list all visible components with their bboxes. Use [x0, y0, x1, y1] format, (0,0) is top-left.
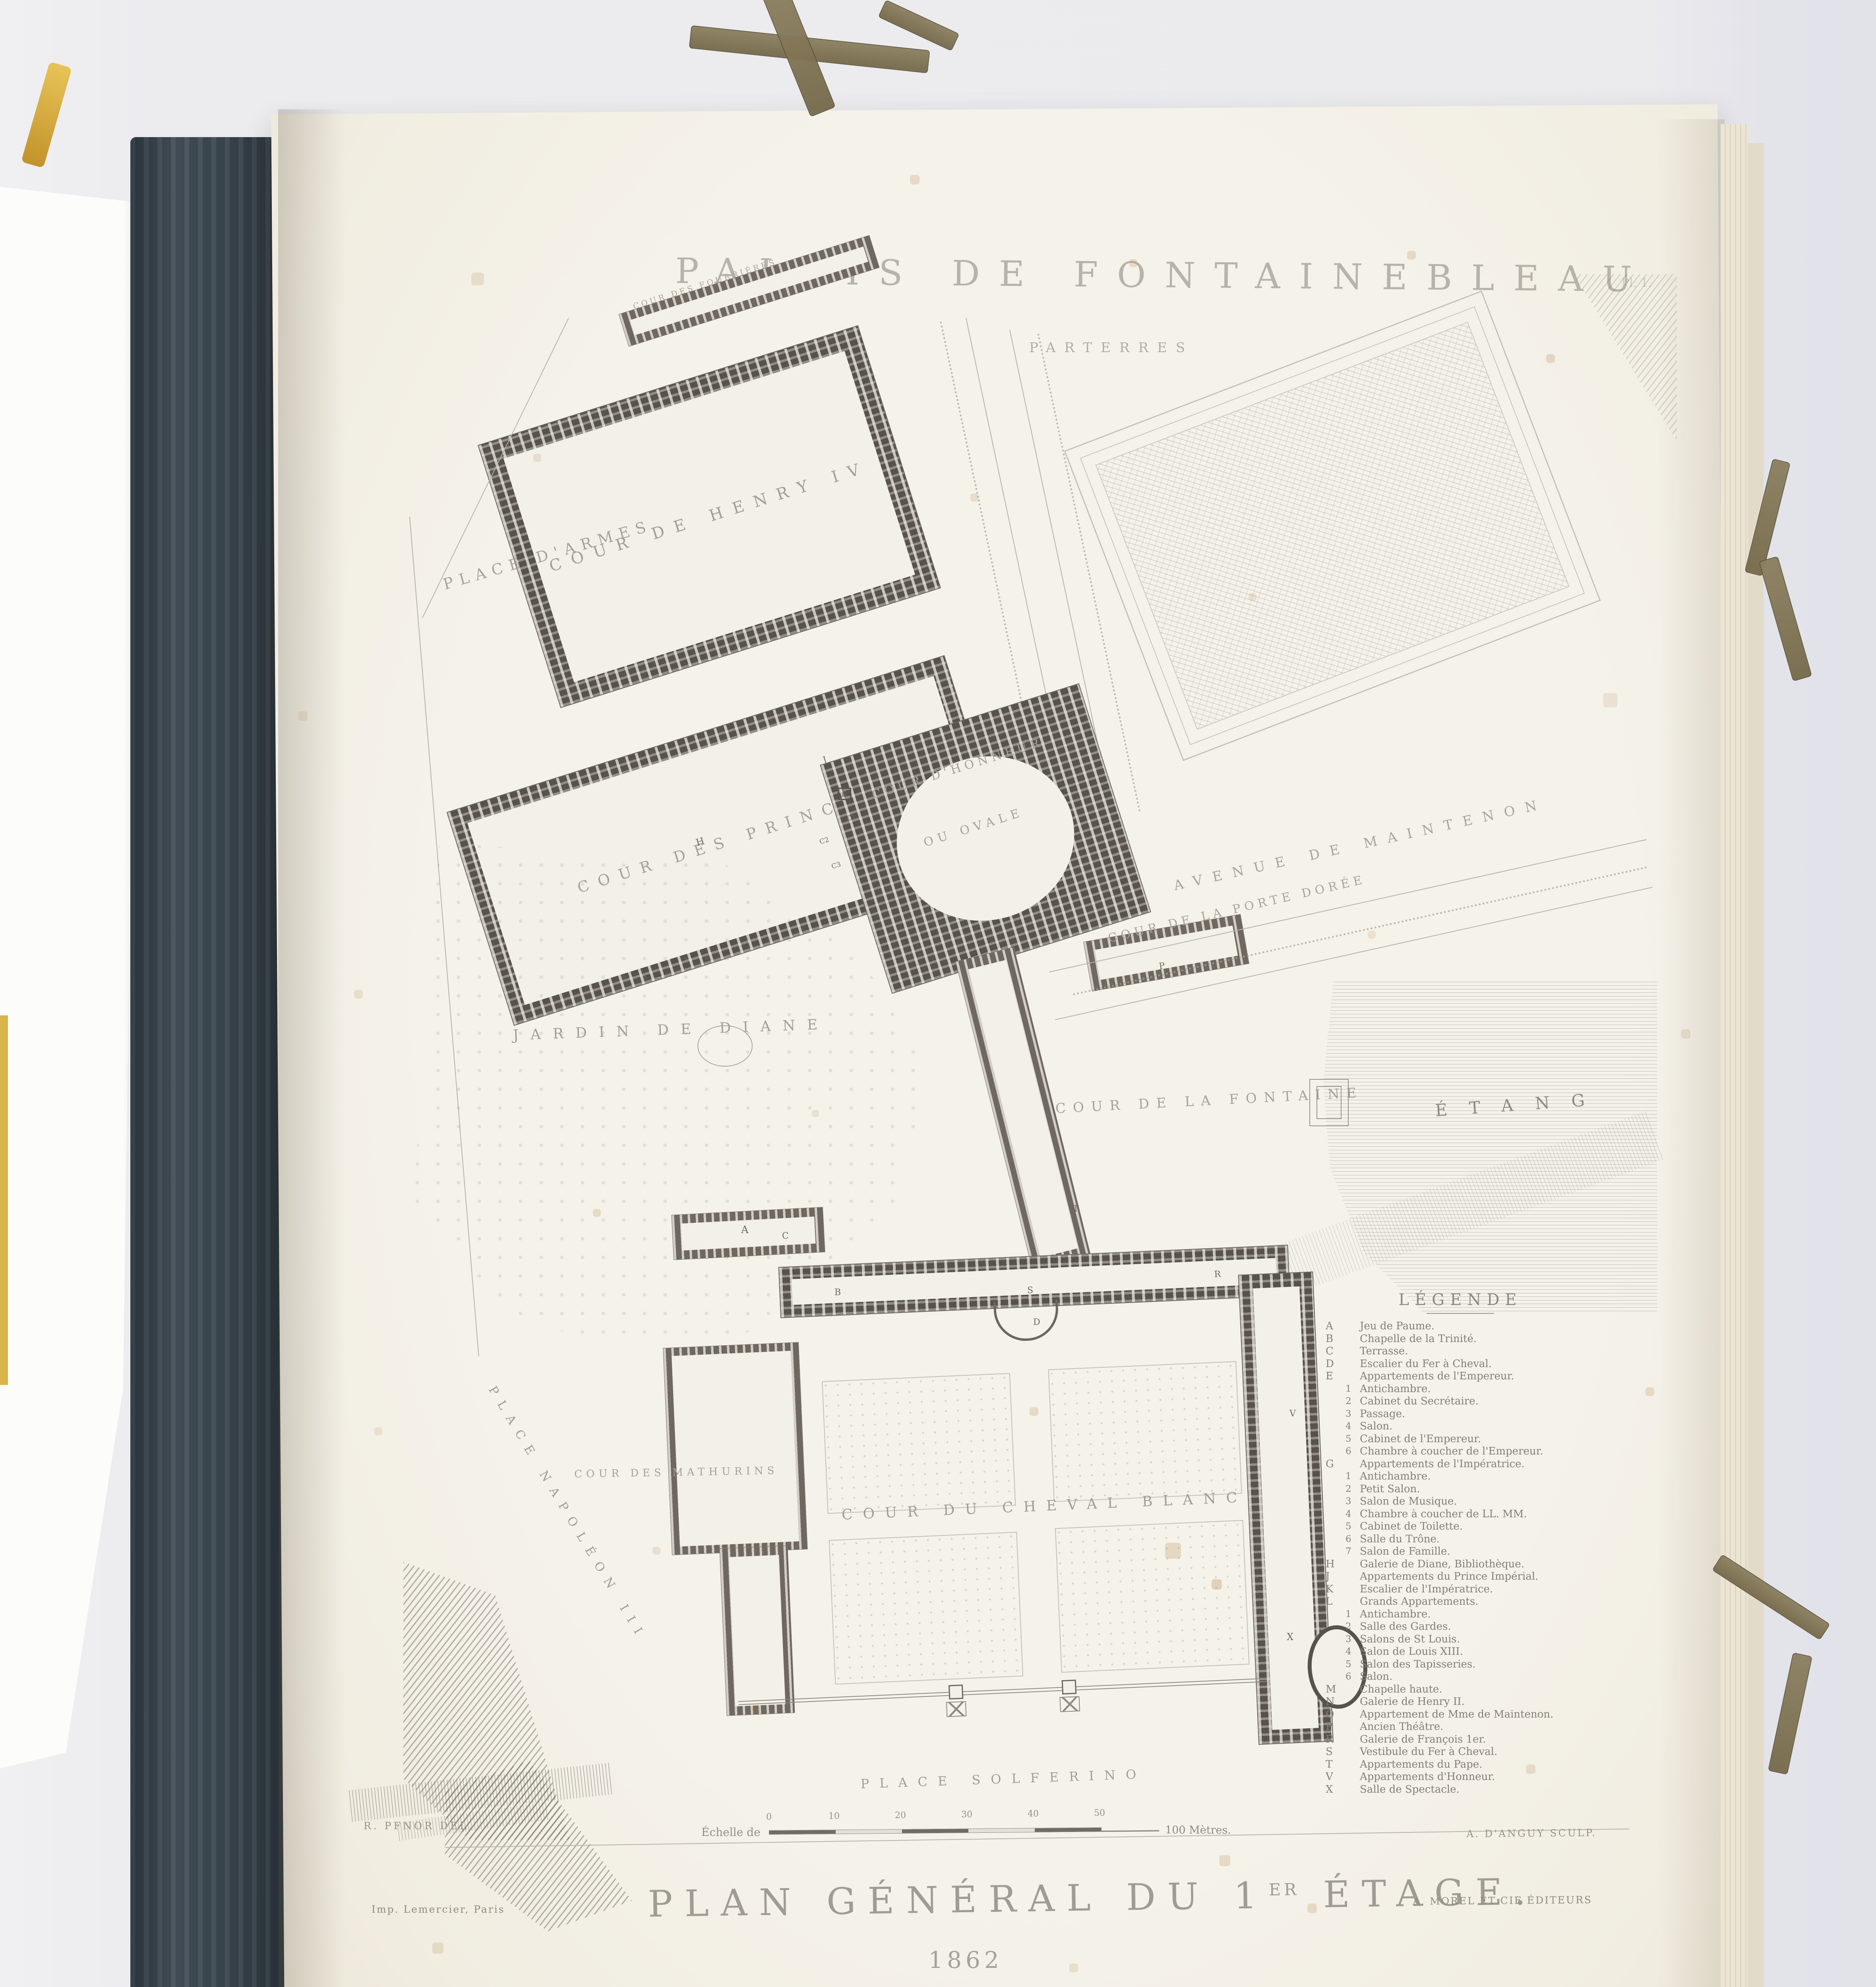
- plan-mark-k: K: [838, 788, 851, 800]
- gate-grille: [946, 1701, 967, 1717]
- foxing-spots: [0, 0, 2, 2]
- legend-row: GAppartements de l'Impératrice.: [1323, 1458, 1597, 1471]
- plan-mark-d: D: [1033, 1317, 1040, 1327]
- legend-row: OAppartement de Mme de Maintenon.: [1323, 1708, 1597, 1721]
- map-label-cour-de-henry-iv: COUR DE HENRY IV: [547, 458, 872, 576]
- plan-mark-a: A: [741, 1224, 749, 1236]
- gate-pier: [1062, 1679, 1077, 1695]
- legend-row: EAppartements de l'Empereur.: [1323, 1370, 1597, 1383]
- plan-mark-c: C: [782, 1231, 789, 1241]
- legend-row: PAncien Théâtre.: [1323, 1721, 1597, 1733]
- legend-row: HGalerie de Diane, Bibliothèque.: [1323, 1558, 1597, 1571]
- court-parterre-square: [1055, 1520, 1249, 1673]
- plate-title-superscript: ER: [1269, 1880, 1300, 1899]
- plate-title-part2: ÉTAGE.: [1299, 1871, 1538, 1916]
- page-gutter-shadow: [278, 109, 346, 1987]
- legend-row: 4Chambre à coucher de LL. MM.: [1323, 1508, 1597, 1521]
- legend-row: 2Petit Salon.: [1323, 1483, 1597, 1496]
- fabric-tie: [878, 0, 959, 51]
- legend-row: 6Salle du Trône.: [1323, 1533, 1597, 1546]
- scale-tick: 50: [1094, 1808, 1105, 1818]
- legend-row: SVestibule du Fer à Cheval.: [1323, 1746, 1597, 1758]
- scale-tick: 40: [1028, 1809, 1039, 1819]
- imprint-publisher: A. MOREL ET CIE ÉDITEURS: [1413, 1894, 1592, 1907]
- page-stack-right-edge: [1748, 143, 1764, 1987]
- fabric-tie: [1768, 1652, 1812, 1775]
- legend-row: 4Salon de Louis XIII.: [1323, 1646, 1597, 1658]
- legend-row: AJeu de Paume.: [1323, 1320, 1597, 1333]
- court-parterre-square: [1048, 1361, 1242, 1502]
- legend-row: DEscalier du Fer à Cheval.: [1323, 1358, 1597, 1371]
- plan-mark-r: R: [1214, 1269, 1221, 1280]
- plate-year: 1862: [906, 1946, 1025, 1973]
- legend-row: JAppartements du Prince Impérial.: [1323, 1571, 1597, 1583]
- legend-row: 6Salon.: [1323, 1671, 1597, 1683]
- left-page-stack: [0, 187, 143, 1768]
- legend-row: 5Cabinet de l'Empereur.: [1323, 1433, 1597, 1446]
- legend-row: NGalerie de Henry II.: [1323, 1696, 1597, 1708]
- scale-tick: 0: [766, 1812, 772, 1822]
- plate-title-part1: PLAN GÉNÉRAL DU 1: [648, 1874, 1269, 1925]
- legend-row: 4Salon.: [1323, 1420, 1597, 1433]
- fabric-tie: [1759, 556, 1812, 682]
- imprint-printer: Imp. Lemercier, Paris: [372, 1904, 505, 1915]
- scale-tick: 10: [829, 1811, 840, 1821]
- pencil: [21, 62, 72, 168]
- legend-row: 2Cabinet du Secrétaire.: [1323, 1395, 1597, 1408]
- credit-engraver: A. D'ANGUY SCULP.: [1466, 1827, 1597, 1840]
- west-lower-wing: [720, 1546, 794, 1716]
- plan-mark-x: X: [1287, 1631, 1293, 1642]
- legend-row: RGalerie de François 1er.: [1323, 1733, 1597, 1746]
- gate-pier: [949, 1685, 964, 1700]
- legend-row: BChapelle de la Trinité.: [1323, 1333, 1597, 1346]
- map-label-parterres: PARTERRES: [1029, 340, 1194, 356]
- legend-row: 1Antichambre.: [1323, 1383, 1597, 1396]
- court-fence: [738, 1678, 1266, 1705]
- legend-row: 5Cabinet de Toilette.: [1323, 1520, 1597, 1533]
- legend-row: 3Passage.: [1323, 1408, 1597, 1421]
- legend-row: TAppartements du Pape.: [1323, 1758, 1597, 1771]
- legend-rule: [1427, 1313, 1494, 1314]
- legend-row: MChapelle haute.: [1323, 1683, 1597, 1696]
- legend: LÉGENDE AJeu de Paume. BChapelle de la T…: [1323, 1291, 1597, 1796]
- legend-row: LGrands Appartements.: [1323, 1596, 1597, 1608]
- plan-mark-s: S: [1027, 1286, 1033, 1296]
- page-stack-right-edge: [1721, 124, 1748, 1987]
- fer-a-cheval-stair: [993, 1299, 1059, 1342]
- legend-row: XSalle de Spectacle.: [1323, 1784, 1597, 1796]
- gate-grille: [1059, 1696, 1080, 1712]
- photo-of-open-book: PALAIS DE FONTAINEBLEAU Pl. 1. COUR DES …: [0, 0, 1876, 1987]
- legend-row: CTerrasse.: [1323, 1345, 1597, 1358]
- legend-row: VAppartements d'Honneur.: [1323, 1771, 1597, 1784]
- plan-mark-t: T: [1073, 1204, 1079, 1214]
- west-block: [663, 1342, 807, 1555]
- legend-title: LÉGENDE: [1323, 1291, 1597, 1309]
- legend-row: KEscalier de l'Impératrice.: [1323, 1583, 1597, 1596]
- plan-mark-v: V: [1289, 1409, 1296, 1419]
- cour-du-cheval-blanc-complex: COUR DU CHEVAL BLANC: [659, 1227, 1367, 1833]
- legend-row: 1Antichambre.: [1323, 1608, 1597, 1621]
- legend-row: 3Salons de St Louis.: [1323, 1633, 1597, 1646]
- scale-suffix: 100 Mètres.: [1165, 1824, 1231, 1836]
- plan-mark-b: B: [834, 1288, 841, 1298]
- legend-row: 5Salon des Tapisseries.: [1323, 1658, 1597, 1671]
- legend-row: 2Salle des Gardes.: [1323, 1621, 1597, 1633]
- yellow-edge: [0, 1015, 8, 1385]
- scale-prefix: Échelle de: [701, 1826, 761, 1839]
- court-parterre-square: [829, 1532, 1023, 1685]
- legend-row: 7Salon de Famille.: [1323, 1545, 1597, 1558]
- credit-draughtsman: R. PFNOR DEL.: [364, 1820, 474, 1832]
- court-parterre-square: [822, 1373, 1016, 1514]
- scale-tick: 20: [895, 1811, 906, 1820]
- book-spine: [130, 137, 285, 1987]
- legend-row: 3Salon de Musique.: [1323, 1495, 1597, 1508]
- legend-row: 6Chambre à coucher de l'Empereur.: [1323, 1445, 1597, 1458]
- legend-row: 1Antichambre.: [1323, 1470, 1597, 1483]
- plan-mark-p: P: [1158, 961, 1165, 972]
- scale-tick: 30: [961, 1810, 972, 1820]
